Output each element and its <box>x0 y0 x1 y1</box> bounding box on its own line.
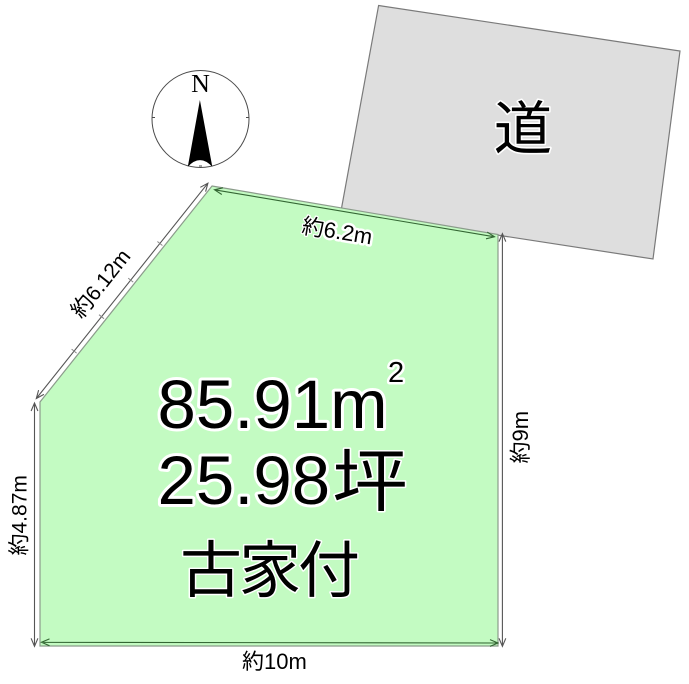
svg-text:85.91m: 85.91m <box>158 366 388 443</box>
svg-text:9m: 9m <box>508 411 533 442</box>
svg-text:N: N <box>191 69 210 98</box>
svg-text:10m: 10m <box>264 649 307 674</box>
svg-text:4.87m: 4.87m <box>9 475 32 533</box>
svg-text:25.98: 25.98 <box>158 442 331 519</box>
svg-text:2: 2 <box>388 357 404 389</box>
